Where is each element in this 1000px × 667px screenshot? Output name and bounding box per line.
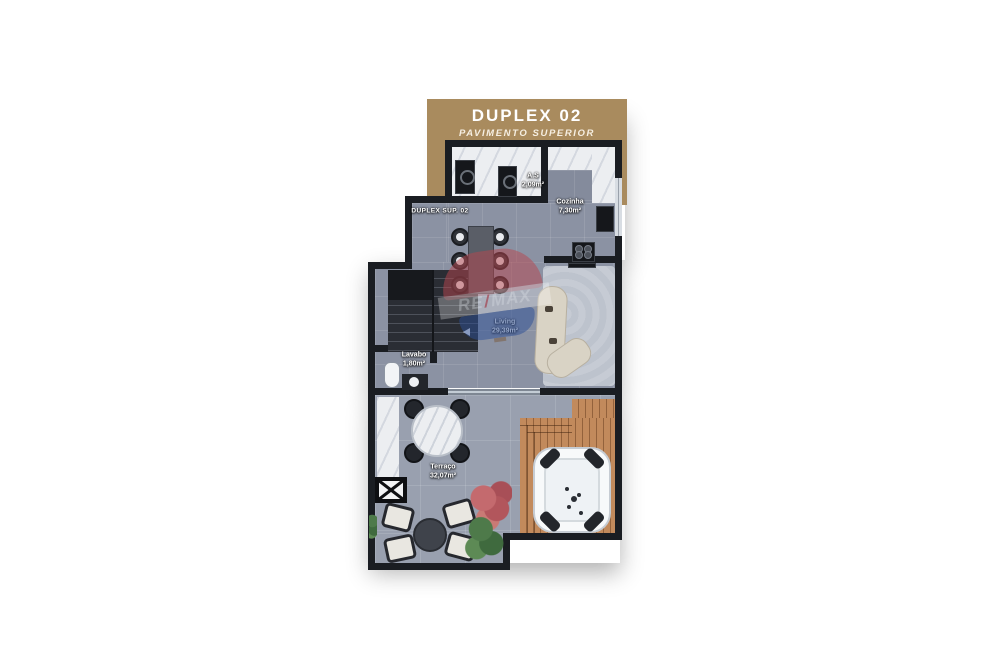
room-label-terrace: Terraço 32,07m² <box>430 463 456 481</box>
wall-top-left <box>445 140 452 200</box>
wall-kitchen-divider <box>541 143 548 199</box>
coffee-table <box>413 518 447 552</box>
room-area: 32,07m² <box>430 472 456 479</box>
sofa-pillow <box>545 306 553 312</box>
deck-step-line <box>520 425 572 426</box>
wall-bottom-right <box>503 533 622 540</box>
room-label-lavatory: Lavabo 1,80m² <box>402 351 427 369</box>
toilet-icon <box>384 362 400 388</box>
tv-icon <box>568 263 596 268</box>
cooktop-icon <box>572 242 595 262</box>
unit-label: DUPLEX SUP. 02 <box>411 208 468 215</box>
laundry-tank-icon <box>498 166 517 197</box>
room-label-kitchen: Cozinha 7,30m² <box>556 198 583 216</box>
hot-tub <box>533 447 611 533</box>
room-name: Terraço <box>430 463 455 470</box>
kitchen-window <box>615 178 622 236</box>
wall-terrace-north-east <box>540 388 622 395</box>
deck-step-line <box>527 425 528 533</box>
dining-chair <box>451 228 469 246</box>
green-plant-small <box>369 512 377 542</box>
banner-title: DUPLEX 02 <box>472 106 583 126</box>
dining-chair <box>451 252 469 270</box>
room-name: Lavabo <box>402 351 427 358</box>
room-label-living: Living 29,39m² <box>492 318 518 336</box>
deck-step-line <box>527 432 572 433</box>
room-area: 7,30m² <box>559 207 581 214</box>
room-label-service: A.S 2,09m² <box>522 172 544 190</box>
floor-plan-image: DUPLEX 02 PAVIMENTO SUPERIOR <box>0 0 1000 667</box>
shaft-symbol <box>375 477 407 503</box>
room-area: 29,39m² <box>492 327 518 334</box>
room-name: Cozinha <box>556 198 583 205</box>
dining-chair <box>451 276 469 294</box>
wall-bottom-left <box>368 563 510 570</box>
stair-direction-arrow <box>463 328 470 336</box>
room-area: 2,09m² <box>522 181 544 188</box>
terrace-sliding-door <box>448 389 540 395</box>
washer-icon <box>455 160 475 194</box>
wall-top <box>445 140 622 147</box>
dining-table <box>468 226 494 294</box>
lavabo-sink <box>402 374 428 390</box>
terrace-round-table <box>411 405 463 457</box>
banner-subtitle: PAVIMENTO SUPERIOR <box>459 128 595 139</box>
oven-icon <box>596 206 614 232</box>
room-name: Living <box>495 318 516 325</box>
wood-deck-upper <box>572 399 615 418</box>
terrace-planter-bench <box>377 397 399 477</box>
green-plant <box>464 515 506 562</box>
wall-service-bottom <box>405 196 548 203</box>
room-name: A.S <box>527 172 539 179</box>
room-area: 1,80m² <box>403 360 425 367</box>
sofa-pillow <box>549 338 557 344</box>
